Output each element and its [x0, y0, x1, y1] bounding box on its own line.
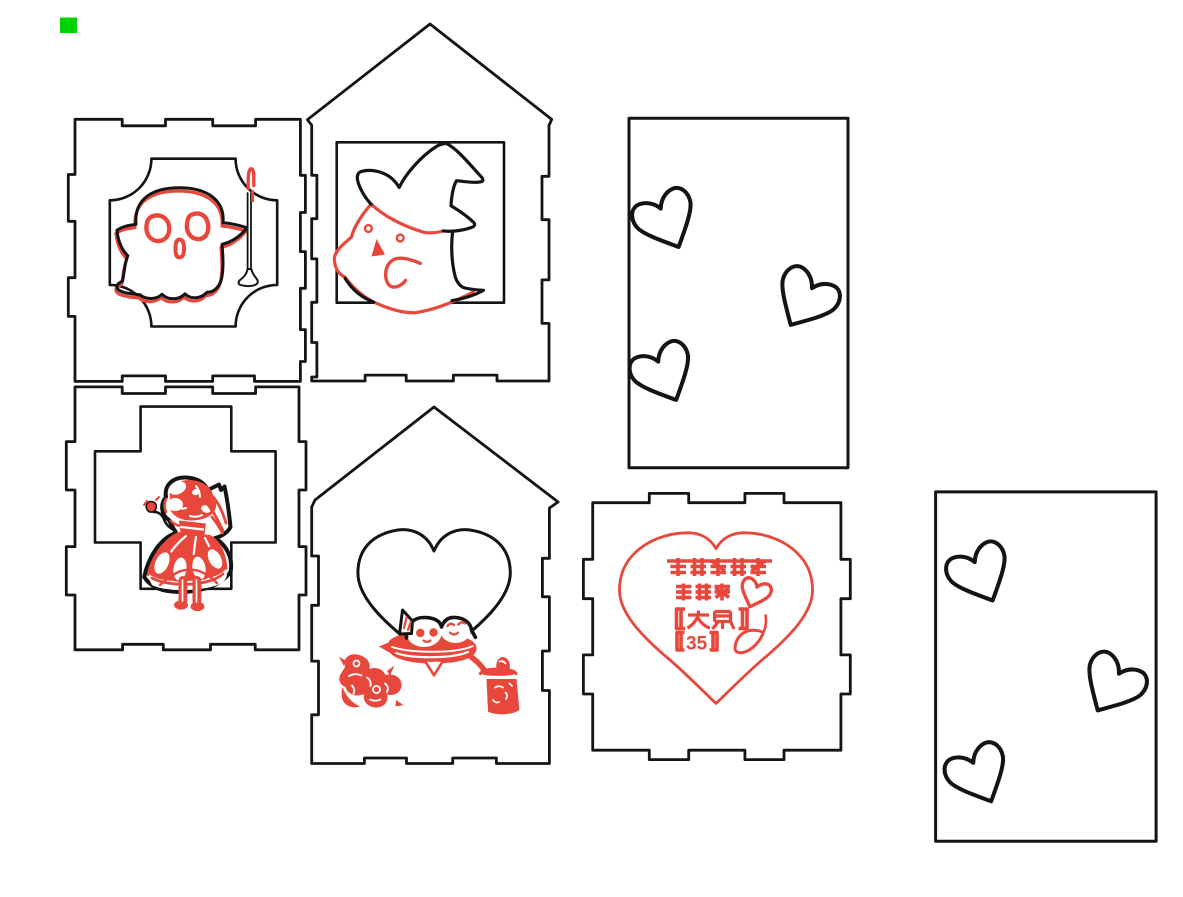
svg-text:35: 35 [686, 634, 708, 655]
